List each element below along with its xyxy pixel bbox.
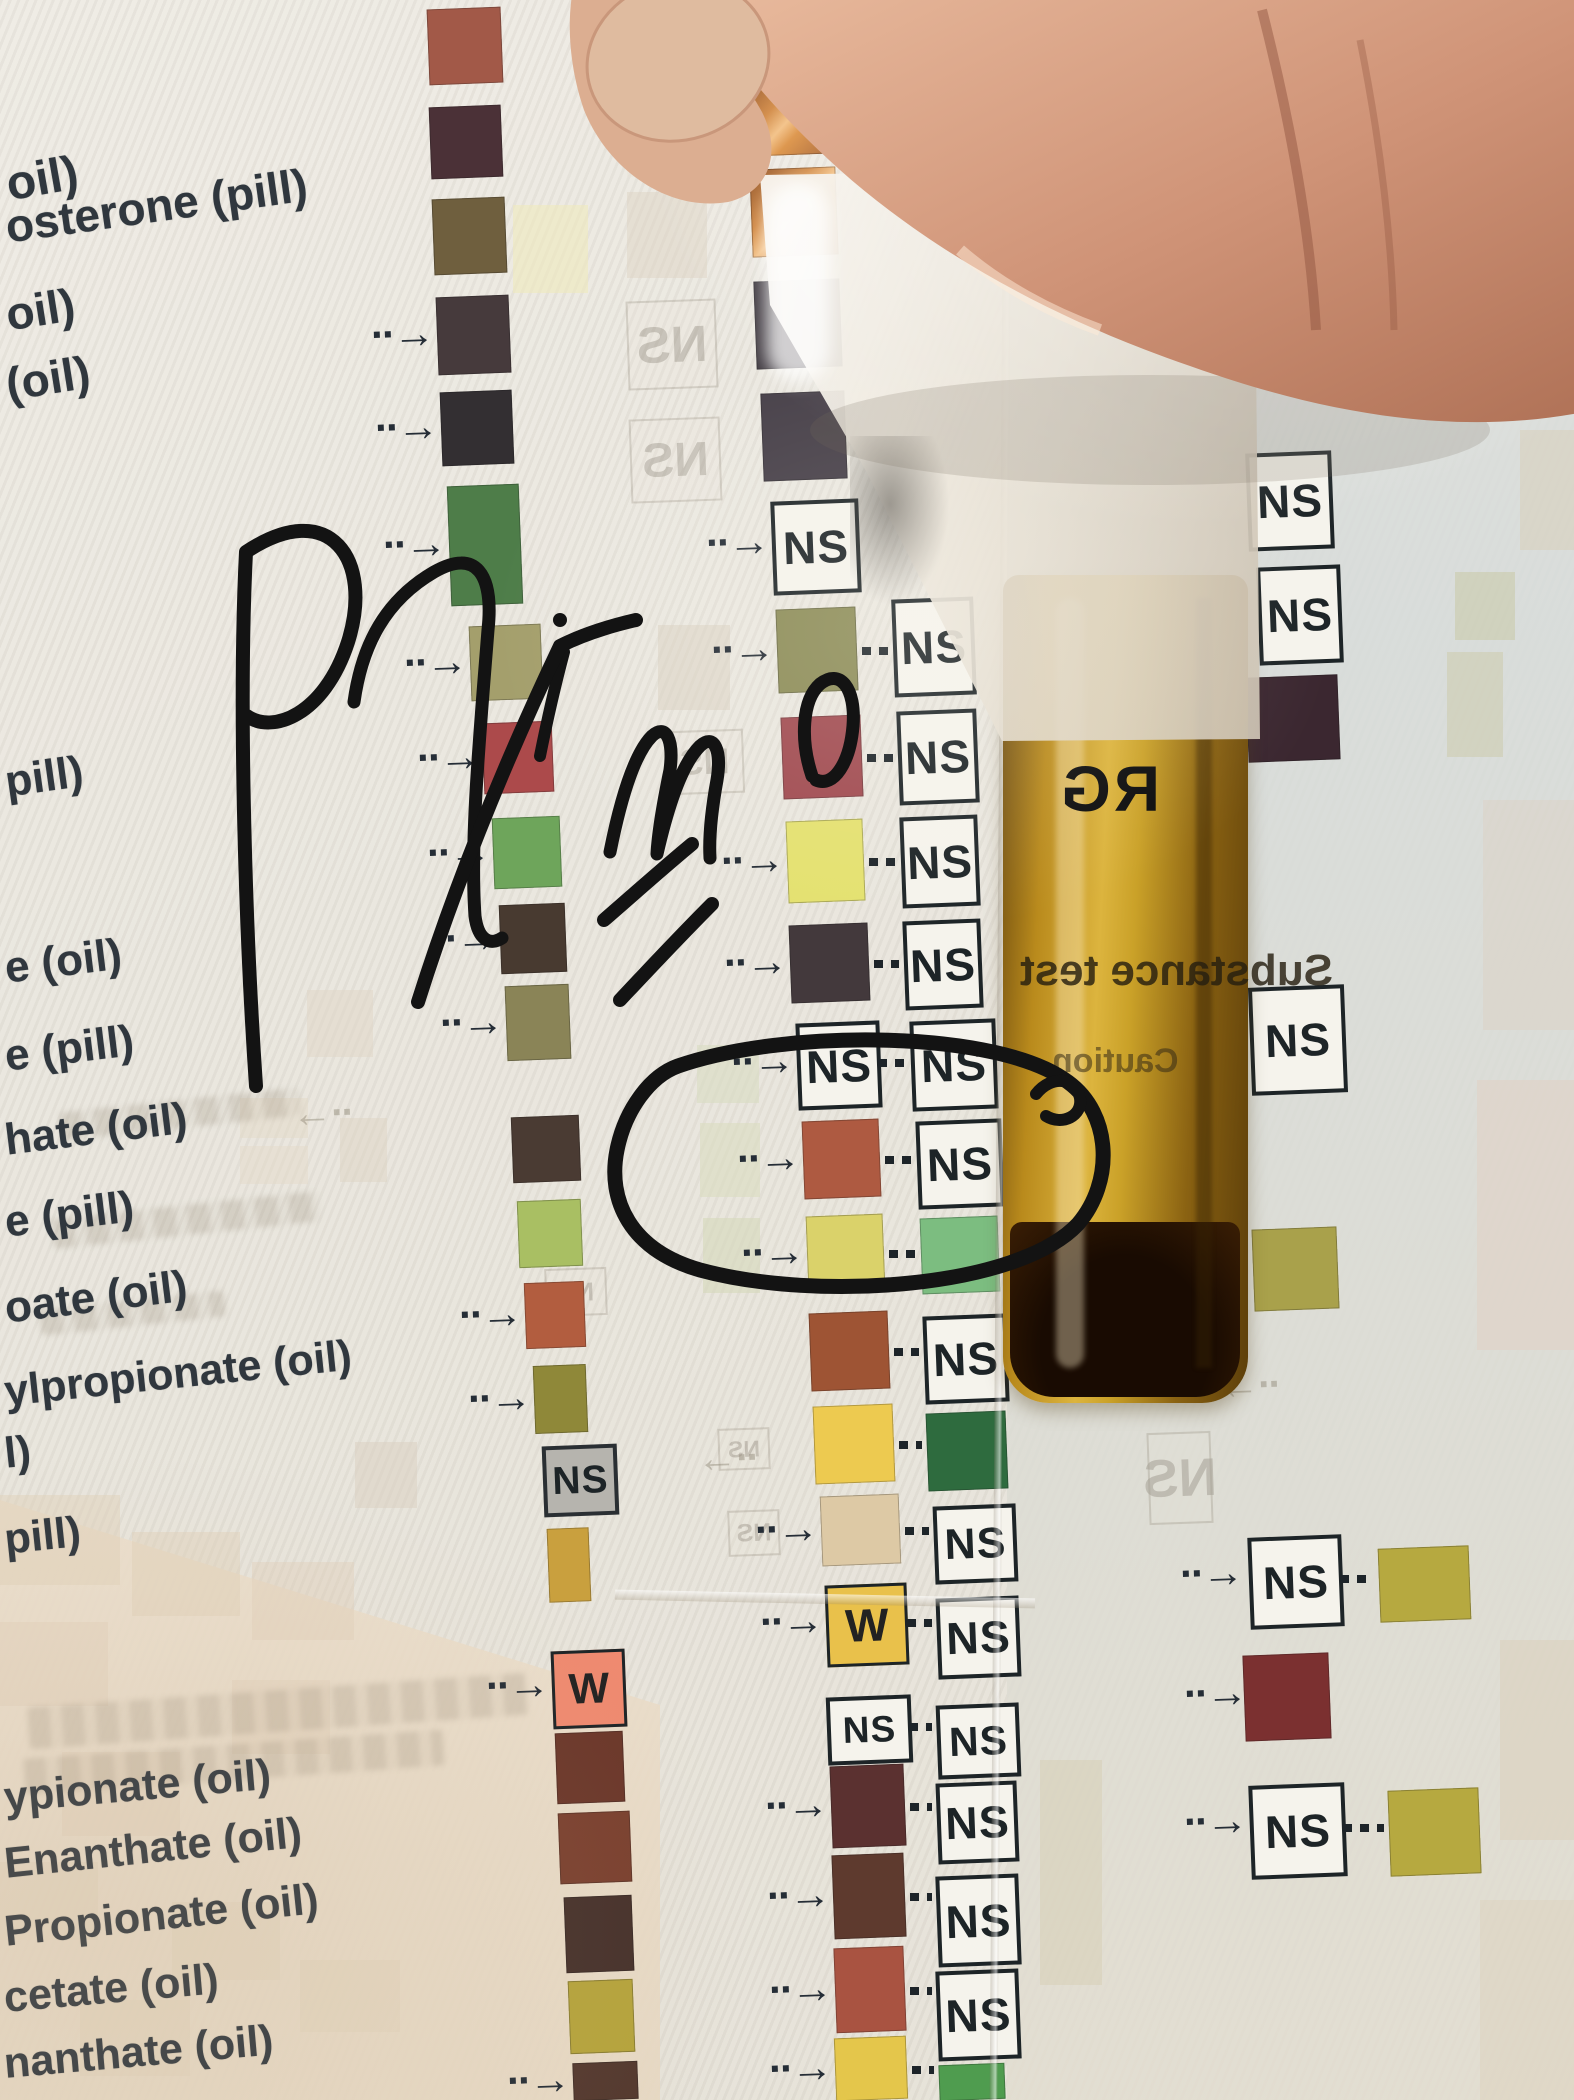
handwritten-i-dot	[553, 613, 567, 627]
handwritten-letter-r	[354, 563, 502, 941]
handwritten-letter-m	[610, 732, 718, 858]
hand-drawn-circle-overlap	[1036, 1081, 1080, 1120]
photo-test-chart-scene: ··→··→··→··→··→··→··→··→··→··→NSW··→··→N…	[0, 0, 1574, 2100]
handwritten-annotation	[0, 0, 1574, 2100]
handwritten-letter-P	[243, 531, 356, 1086]
handwritten-letter-o	[804, 678, 853, 781]
hand-drawn-circle	[615, 1040, 1103, 1287]
